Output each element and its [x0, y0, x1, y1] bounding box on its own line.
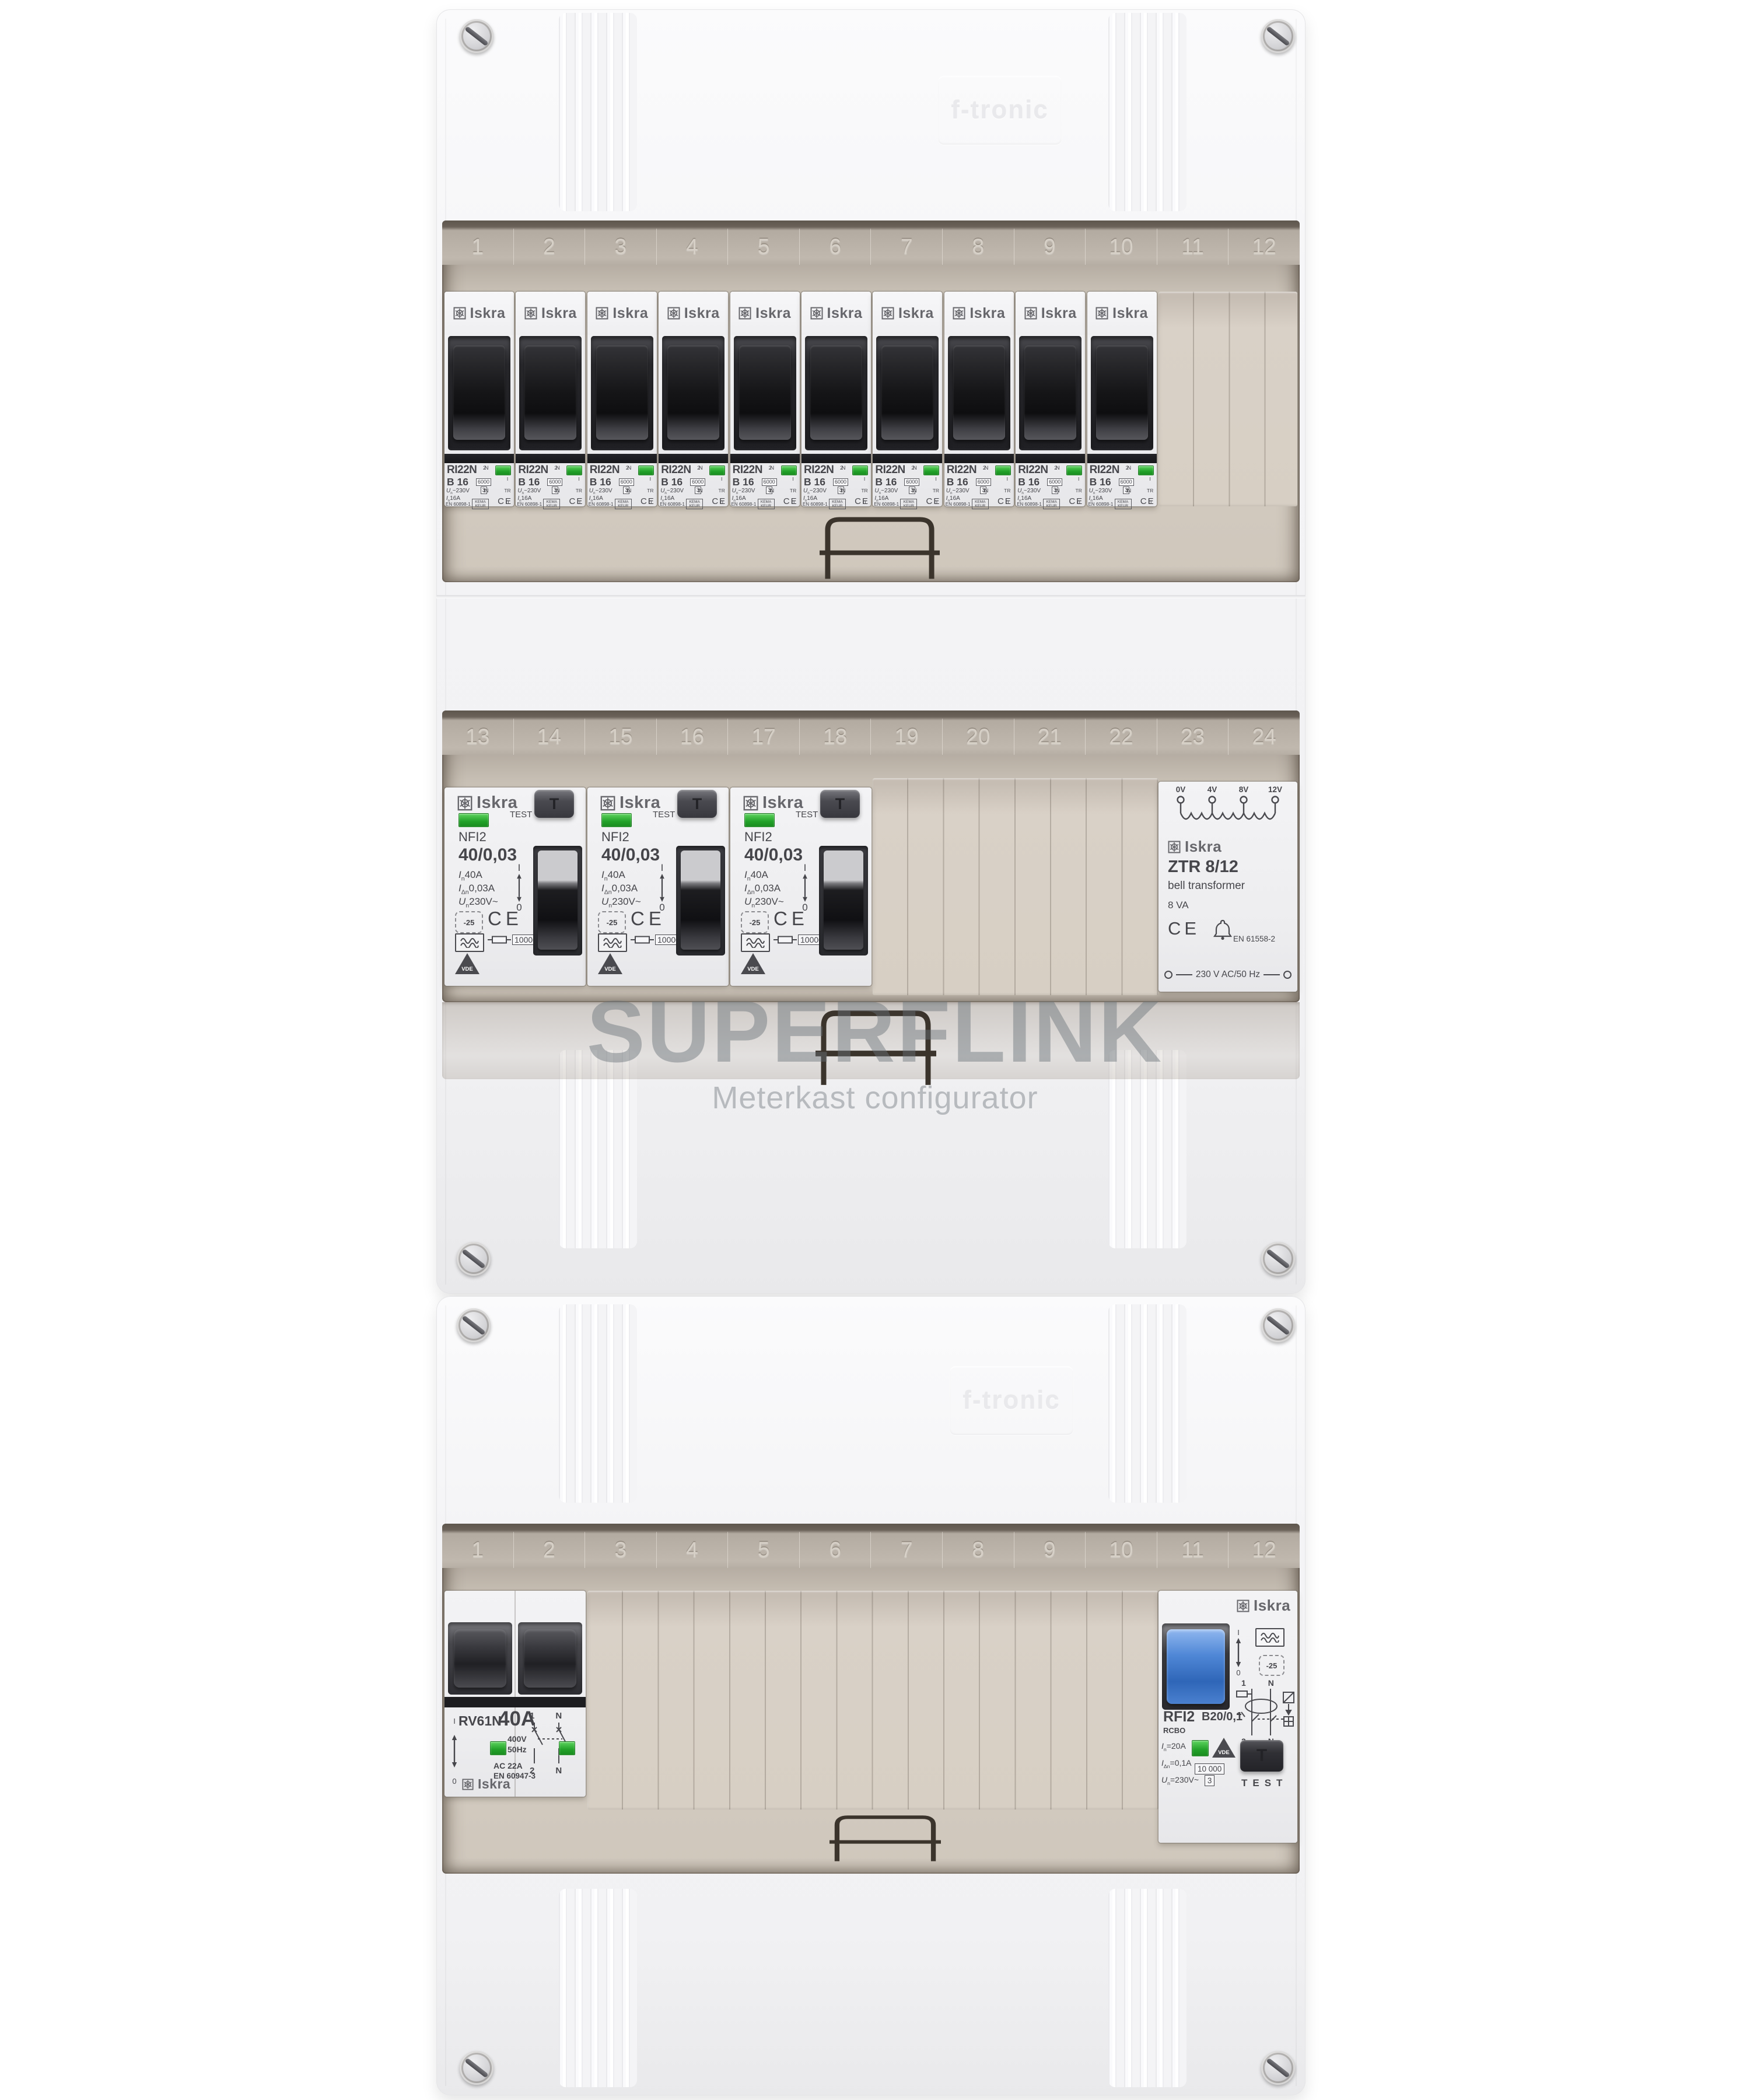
switch-position-marks: I 0: [513, 862, 525, 914]
main-switch-frequency: 50Hz: [508, 1745, 527, 1754]
mcb-standard: EN 60898-1: [803, 502, 828, 507]
mcb-breaker: Iskra RI22N 2 N B 16 60003 ITR0 Un ~230V…: [1016, 292, 1085, 506]
ce-mark: CE: [488, 908, 523, 930]
panel-edge-line: [445, 19, 446, 1284]
iskra-logo-text: Iskra: [1112, 305, 1148, 322]
iskra-logo-icon: [810, 307, 823, 320]
mcb-toggle-recess: [662, 336, 724, 450]
main-switch-model: RV61N: [459, 1713, 502, 1729]
mcb-model: RI22N: [590, 464, 619, 477]
status-led: [1138, 466, 1154, 475]
rcbo-un: Un=230V~: [1161, 1775, 1170, 1786]
mcb-standard: EN 60898-1: [731, 502, 757, 507]
vent-ribs: [1108, 13, 1186, 211]
test-label: TEST: [653, 810, 675, 820]
module-number: 1: [442, 1532, 514, 1568]
switch-position-marks: I 0: [799, 862, 811, 914]
module-number: 11: [1157, 229, 1229, 265]
rcbo-toggle-handle-blue[interactable]: [1167, 1629, 1225, 1704]
rcd-idn: IΔn 0,03A: [601, 883, 612, 895]
iskra-logo-icon: [1095, 307, 1108, 320]
pulse-current-type-icon: [1255, 1628, 1284, 1647]
iskra-logo-icon: [953, 307, 965, 320]
mcb-breaker: Iskra RI22N 2 N B 16 60003 ITR0 Un ~230V…: [587, 292, 657, 506]
status-led: [852, 466, 868, 475]
vent-ribs: [1108, 1304, 1186, 1503]
mcb-toggle-handle[interactable]: [1024, 345, 1076, 440]
mcb-terminal-top: 2 N: [697, 465, 699, 471]
module-number: 3: [585, 1532, 657, 1568]
status-led: [744, 813, 775, 827]
mcb-terminal-top: 2 N: [626, 465, 628, 471]
mcb-breaker: Iskra RI22N 2 N B 16 60003 ITR0 Un ~230V…: [659, 292, 728, 506]
mcb-dark-band: [944, 454, 1014, 463]
mcb-standard: EN 60898-1: [874, 502, 899, 507]
rcd-earth-leakage-switch: Iskra TEST T NFI2 40/0,03 In 40A IΔn 0,0…: [730, 787, 871, 986]
mcb-toggle-handle[interactable]: [453, 345, 505, 440]
switch-position-marks: I 0: [1233, 1628, 1244, 1677]
vent-ribs: [559, 1889, 637, 2087]
status-led: [709, 466, 725, 475]
rcd-model: NFI2: [459, 829, 487, 845]
module-number: 16: [657, 719, 729, 755]
module-number: 5: [728, 229, 800, 265]
test-label: TEST: [796, 810, 818, 820]
circuit-diagram-icon: [1234, 1689, 1295, 1735]
ce-mark: CE: [926, 496, 941, 506]
rcbo-type: RCBO: [1163, 1726, 1185, 1735]
mcb-dark-band: [444, 454, 514, 463]
mcb-model: RI22N: [661, 464, 691, 477]
iskra-logo-icon: [738, 307, 751, 320]
mcb-breaker: Iskra RI22N 2 N B 16 60003 ITR0 Un ~230V…: [1087, 292, 1157, 506]
updown-arrow-icon: [1235, 1638, 1242, 1667]
mcb-un: Un ~230V: [946, 488, 953, 495]
module-number-strip: 123456789101112: [442, 220, 1300, 265]
rcd-toggle-recess: [533, 846, 582, 956]
mcb-breaker: Iskra RI22N 2 N B 16 60003 ITR0 Un ~230V…: [873, 292, 942, 506]
mcb-toggle-recess: [519, 336, 582, 450]
main-switch-ac-rating: AC 22A: [494, 1761, 523, 1770]
module-number: 10: [1086, 1532, 1157, 1568]
status-led: [495, 466, 511, 475]
iskra-logo-icon: [667, 307, 680, 320]
mcb-toggle-recess: [876, 336, 939, 450]
iskra-logo-text: Iskra: [970, 305, 1005, 322]
ce-mark: CE: [498, 496, 512, 506]
iskra-logo-text: Iskra: [541, 305, 577, 322]
mcb-standard: EN 60898-1: [946, 502, 971, 507]
enclosure-bottom-box: f-tronic 123456789101112 I 0: [436, 1296, 1305, 2095]
mcb-dark-band: [659, 454, 728, 463]
module-number: 7: [871, 1532, 943, 1568]
module-number: 4: [657, 229, 729, 265]
meterkast-product-image: f-tronic 123456789101112 Iskra RI22N: [0, 0, 1750, 2100]
din-rail-window-row2: 131415161718192021222324 Iskra TEST T NF…: [442, 710, 1300, 1002]
mcb-brand-band: Iskra: [516, 292, 585, 335]
mcb-brand-band: Iskra: [801, 292, 871, 335]
mcb-model: RI22N: [804, 464, 834, 477]
mcb-un: Un ~230V: [803, 488, 810, 495]
ce-mark: CE: [640, 496, 655, 506]
terminal-dot-icon: [1283, 971, 1291, 979]
mcb-standard: EN 60898-1: [660, 502, 685, 507]
rcd-earth-leakage-switch: Iskra TEST T NFI2 40/0,03 In 40A IΔn 0,0…: [587, 787, 729, 986]
mcb-toggle-handle[interactable]: [596, 345, 648, 440]
rcbo-rating: B20/0,1: [1202, 1710, 1242, 1724]
rcd-un: Un 230V~: [601, 896, 612, 909]
screw-bottom-left: [457, 1242, 491, 1276]
mcb-terminal-top: 2 N: [769, 465, 771, 471]
mcb-dark-band: [801, 454, 871, 463]
mcb-rating: B 16: [661, 476, 682, 488]
mcb-un: Un ~230V: [1089, 488, 1095, 495]
module-number: 7: [871, 229, 943, 265]
screw-bottom-left: [460, 2051, 494, 2085]
enclosure-brand-emboss: f-tronic: [938, 76, 1062, 145]
mcb-terminal-top: 2 N: [1126, 465, 1128, 471]
test-label: TEST: [510, 810, 532, 820]
main-switch-toggle-recess: [448, 1622, 512, 1695]
mcb-rating: B 16: [590, 476, 611, 488]
mcb-model: RI22N: [518, 464, 548, 477]
transformer-type: bell transformer: [1168, 880, 1245, 892]
status-led: [923, 466, 939, 475]
switch-position-marks: I 0: [656, 862, 668, 914]
mcb-toggle-handle[interactable]: [1096, 345, 1148, 440]
test-button[interactable]: T: [820, 790, 860, 818]
kema-keur-mark: KEMA KEUR: [1115, 499, 1132, 509]
pulse-current-type-icon: [455, 933, 484, 952]
pulse-current-type-icon: [741, 933, 770, 952]
vde-mark-icon: VDE: [455, 953, 480, 974]
frost-resistance-icon: -25: [455, 911, 483, 933]
enclosure-brand-emboss: f-tronic: [950, 1366, 1073, 1435]
mcb-standard: EN 60898-1: [1088, 502, 1114, 507]
mcb-brand-band: Iskra: [587, 292, 657, 335]
mcb-toggle-recess: [805, 336, 867, 450]
status-led: [459, 813, 489, 827]
transformer-power: 8 VA: [1168, 900, 1189, 911]
kema-keur-mark: KEMA KEUR: [972, 499, 989, 509]
mcb-toggle-recess: [734, 336, 796, 450]
mcb-rating: B 16: [518, 476, 540, 488]
mcb-terminal-top: 2 N: [911, 465, 913, 471]
mcb-terminal-bottom: 1 N: [697, 488, 699, 494]
rcd-rating: 40/0,03: [744, 845, 803, 865]
mcb-label: RI22N 2 N B 16 60003 ITR0 Un ~230V In 16…: [444, 463, 514, 506]
mcb-terminal-top: 2 N: [1054, 465, 1056, 471]
iskra-logo-icon: [1168, 841, 1181, 853]
mcb-standard: EN 60898-1: [589, 502, 614, 507]
rcd-un: Un 230V~: [459, 896, 469, 909]
mcb-model: RI22N: [1090, 464, 1119, 477]
mcb-rating: B 16: [1090, 476, 1111, 488]
mcb-terminal-bottom: 1 N: [483, 488, 485, 494]
mcb-un: Un ~230V: [589, 488, 596, 495]
tap-label: 8V: [1233, 785, 1254, 794]
mcb-model: RI22N: [875, 464, 905, 477]
mcb-toggle-handle[interactable]: [667, 345, 719, 440]
mcb-un: Un ~230V: [660, 488, 667, 495]
mcb-dark-band: [1016, 454, 1085, 463]
module-number: 9: [1014, 1532, 1086, 1568]
iskra-logo-text: Iskra: [478, 1776, 510, 1792]
mcb-brand-band: Iskra: [1087, 292, 1157, 335]
main-switch: I 0 RV61N 40A 400V 50Hz AC 22A EN 60947-…: [444, 1591, 586, 1797]
mcb-label: RI22N 2 N B 16 60003 ITR0 Un ~230V In 16…: [1087, 463, 1157, 506]
frost-resistance-icon: -25: [598, 911, 626, 933]
kema-keur-mark: KEMA KEUR: [1043, 499, 1060, 509]
module-number: 6: [800, 1532, 871, 1568]
module-number: 10: [1086, 229, 1157, 265]
iskra-logo-icon: [600, 796, 615, 811]
rcd-rating: 40/0,03: [601, 845, 660, 865]
rcd-idn: IΔn 0,03A: [459, 883, 469, 895]
mcb-terminal-bottom: 1 N: [911, 488, 913, 494]
mcb-label: RI22N 2 N B 16 60003 ITR0 Un ~230V In 16…: [730, 463, 800, 506]
module-number: 12: [1228, 1532, 1300, 1568]
terminal-labels-top: 1N: [1241, 1678, 1274, 1688]
updown-arrow-icon: [801, 874, 808, 902]
fuse-icon: [773, 936, 797, 944]
rcd-toggle-handle[interactable]: [824, 850, 863, 950]
vde-mark-icon: VDE: [741, 953, 765, 974]
tap-label: 4V: [1202, 785, 1223, 794]
module-number: 8: [943, 1532, 1014, 1568]
module-number: 15: [585, 719, 657, 755]
mcb-toggle-recess: [448, 336, 510, 450]
mcb-standard: EN 60898-1: [517, 502, 542, 507]
module-number: 12: [1228, 229, 1300, 265]
enclosure-top-box: f-tronic 123456789101112 Iskra RI22N: [436, 9, 1305, 1294]
frost-resistance-icon: -25: [741, 911, 769, 933]
rcd-toggle-recess: [819, 846, 868, 956]
mcb-toggle-handle[interactable]: [524, 345, 576, 440]
module-number: 17: [728, 719, 800, 755]
screw-top-right: [1261, 1308, 1295, 1342]
kema-keur-mark: KEMA KEUR: [472, 499, 489, 509]
status-led: [1066, 466, 1082, 475]
module-number-strip: 131415161718192021222324: [442, 710, 1300, 755]
module-number: 6: [800, 229, 871, 265]
din-cover-clip-icon[interactable]: [815, 1005, 936, 1086]
module-number: 4: [657, 1532, 729, 1568]
mcb-dark-band: [516, 454, 585, 463]
bell-transformer: 0V 4V 8V 12V: [1158, 782, 1297, 992]
transformer-coil-icon: [1158, 796, 1297, 825]
backup-fuse-rating: 10000: [773, 935, 825, 945]
mcb-un: Un ~230V: [874, 488, 881, 495]
rcd-in: In 40A: [459, 869, 465, 882]
updown-arrow-icon: [659, 874, 666, 902]
iskra-logo-icon: [1237, 1599, 1249, 1612]
ce-mark: CE: [1168, 918, 1200, 939]
rcd-earth-leakage-switch: Iskra TEST T NFI2 40/0,03 In 40A IΔn 0,0…: [444, 787, 586, 986]
panel-edge-line: [1296, 19, 1297, 1284]
terminal-dot-icon: [1164, 971, 1172, 979]
din-cover-clip-icon[interactable]: [829, 1812, 941, 1862]
tap-label: 12V: [1265, 785, 1286, 794]
mcb-toggle-handle[interactable]: [881, 345, 933, 440]
mcb-breaker: Iskra RI22N 2 N B 16 60003 ITR0 Un ~230V…: [730, 292, 800, 506]
rcd-toggle-handle[interactable]: [681, 850, 720, 950]
din-rail-window-row3: 123456789101112 I 0 RV61N 40A: [442, 1524, 1300, 1874]
iskra-logo-icon: [457, 796, 473, 811]
rcd-idn: IΔn 0,03A: [744, 883, 755, 895]
rcbo-in: In=20A: [1161, 1741, 1167, 1752]
transformer-supply: 230 V AC/50 Hz: [1164, 970, 1291, 980]
mcb-model: RI22N: [733, 464, 762, 477]
mcb-model: RI22N: [1018, 464, 1048, 477]
mcb-brand-band: Iskra: [873, 292, 942, 335]
module-number: 24: [1228, 719, 1300, 755]
module-number: 5: [728, 1532, 800, 1568]
mcb-brand-band: Iskra: [444, 292, 514, 335]
mcb-toggle-recess: [591, 336, 653, 450]
kema-keur-mark: KEMA KEUR: [543, 499, 560, 509]
mcb-dark-band: [587, 454, 657, 463]
kema-keur-mark: KEMA KEUR: [615, 499, 632, 509]
mcb-un: Un ~230V: [732, 488, 738, 495]
status-led: [559, 1741, 575, 1755]
mcb-toggle-handle[interactable]: [810, 345, 862, 440]
main-switch-toggle-handle[interactable]: [454, 1629, 506, 1688]
dark-band: [444, 1697, 586, 1707]
mcb-label: RI22N 2 N B 16 60003 ITR0 Un ~230V In 16…: [659, 463, 728, 506]
mcb-terminal-bottom: 1 N: [769, 488, 771, 494]
updown-arrow-icon: [516, 874, 523, 902]
mcb-label: RI22N 2 N B 16 60003 ITR0 Un ~230V In 16…: [873, 463, 942, 506]
mcb-rating: B 16: [947, 476, 968, 488]
mcb-label: RI22N 2 N B 16 60003 ITR0 Un ~230V In 16…: [516, 463, 585, 506]
mcb-un: Un ~230V: [1017, 488, 1024, 495]
vent-ribs: [559, 13, 637, 211]
iskra-logo-text: Iskra: [1185, 838, 1221, 856]
transformer-standard: EN 61558-2: [1233, 935, 1275, 943]
mcb-rating: B 16: [1018, 476, 1039, 488]
module-number: 22: [1086, 719, 1157, 755]
kema-keur-mark: KEMA KEUR: [686, 499, 703, 509]
mcb-brand-band: Iskra: [659, 292, 728, 335]
iskra-logo-text: Iskra: [1041, 305, 1077, 322]
mcb-dark-band: [873, 454, 942, 463]
mcb-breaker: Iskra RI22N 2 N B 16 60003 ITR0 Un ~230V…: [944, 292, 1014, 506]
mcb-terminal-top: 2 N: [983, 465, 985, 471]
backup-fuse-rating: 10000: [488, 935, 540, 945]
module-number: 14: [514, 719, 586, 755]
screw-bottom-right: [1261, 1242, 1295, 1276]
ce-mark: CE: [783, 496, 798, 506]
blanking-modules: [587, 1591, 1158, 1810]
ce-mark: CE: [712, 496, 726, 506]
iskra-logo-text: Iskra: [612, 305, 648, 322]
main-switch-toggle-recess: [518, 1622, 582, 1695]
vde-mark-icon: VDE: [598, 953, 622, 974]
module-number: 1: [442, 229, 514, 265]
frost-resistance-icon: -25: [1259, 1655, 1284, 1676]
mcb-dark-band: [730, 454, 800, 463]
iskra-logo-icon: [462, 1779, 474, 1790]
mcb-breaker: Iskra RI22N 2 N B 16 60003 ITR0 Un ~230V…: [801, 292, 871, 506]
ce-mark: CE: [998, 496, 1012, 506]
main-switch-toggle-handle[interactable]: [524, 1629, 576, 1688]
mcb-breaker: Iskra RI22N 2 N B 16 60003 ITR0 Un ~230V…: [516, 292, 585, 506]
din-rail-window-row1: 123456789101112 Iskra RI22N 2 N B 16 600…: [442, 220, 1300, 582]
mcb-toggle-recess: [1091, 336, 1153, 450]
ce-mark: CE: [1140, 496, 1155, 506]
screw-top-right: [1261, 19, 1295, 53]
mcb-brand-band: Iskra: [730, 292, 800, 335]
ce-mark: CE: [631, 908, 666, 930]
mcb-brand-band: Iskra: [1016, 292, 1085, 335]
vent-ribs: [1108, 1050, 1186, 1248]
updown-arrow-icon: [451, 1735, 458, 1767]
rcd-toggle-handle[interactable]: [538, 850, 577, 950]
ce-mark: CE: [773, 908, 808, 930]
test-button[interactable]: T: [1240, 1740, 1283, 1772]
status-led: [490, 1741, 506, 1755]
mcb-un: Un ~230V: [446, 488, 453, 495]
fuse-icon: [631, 936, 654, 944]
test-button[interactable]: T: [534, 790, 574, 818]
mcb-breaker: Iskra RI22N 2 N B 16 60003 ITR0 Un ~230V…: [444, 292, 514, 506]
mcb-standard: EN 60898-1: [446, 502, 471, 507]
status-led: [781, 466, 797, 475]
iskra-logo-text: Iskra: [827, 305, 863, 322]
iskra-logo-icon: [743, 796, 758, 811]
test-button[interactable]: T: [677, 790, 717, 818]
mcb-model: RI22N: [447, 464, 477, 477]
mcb-toggle-handle[interactable]: [953, 345, 1005, 440]
din-cover-clip-icon[interactable]: [820, 512, 940, 580]
kema-keur-mark: KEMA KEUR: [829, 499, 846, 509]
vde-mark-icon: VDE: [1212, 1738, 1235, 1758]
module-number: 2: [514, 1532, 586, 1568]
rcd-un: Un 230V~: [744, 896, 755, 909]
tap-label: 0V: [1170, 785, 1191, 794]
mcb-terminal-top: 2 N: [840, 465, 842, 471]
fuse-icon: [488, 936, 511, 944]
mcb-toggle-handle[interactable]: [739, 345, 791, 440]
iskra-logo-text: Iskra: [755, 305, 791, 322]
mcb-label: RI22N 2 N B 16 60003 ITR0 Un ~230V In 16…: [801, 463, 871, 506]
status-led: [1192, 1740, 1209, 1756]
iskra-logo-icon: [881, 307, 894, 320]
rcbo-breaker: Iskra I 0 -25 1N: [1158, 1591, 1297, 1843]
rcd-toggle-recess: [676, 846, 725, 956]
mcb-rating: B 16: [447, 476, 468, 488]
mcb-terminal-bottom: 1 N: [983, 488, 985, 494]
mcb-terminal-top: 2 N: [554, 465, 556, 471]
status-led: [566, 466, 582, 475]
rcbo-toggle-recess: [1162, 1623, 1230, 1710]
iskra-logo-icon: [596, 307, 608, 320]
mcb-terminal-bottom: 1 N: [1054, 488, 1056, 494]
pulse-current-type-icon: [598, 933, 627, 952]
ce-mark: CE: [1069, 496, 1083, 506]
vent-ribs: [559, 1050, 637, 1248]
main-switch-voltage: 400V: [508, 1734, 527, 1744]
mcb-dark-band: [1087, 454, 1157, 463]
mcb-label: RI22N 2 N B 16 60003 ITR0 Un ~230V In 16…: [587, 463, 657, 506]
mcb-terminal-bottom: 1 N: [840, 488, 842, 494]
rcbo-idn: IΔn=0,1A: [1161, 1758, 1170, 1769]
module-number: 23: [1157, 719, 1229, 755]
vent-ribs: [559, 1304, 637, 1503]
iskra-logo-icon: [453, 307, 466, 320]
terminal-labels-bottom: 2N: [530, 1766, 562, 1776]
